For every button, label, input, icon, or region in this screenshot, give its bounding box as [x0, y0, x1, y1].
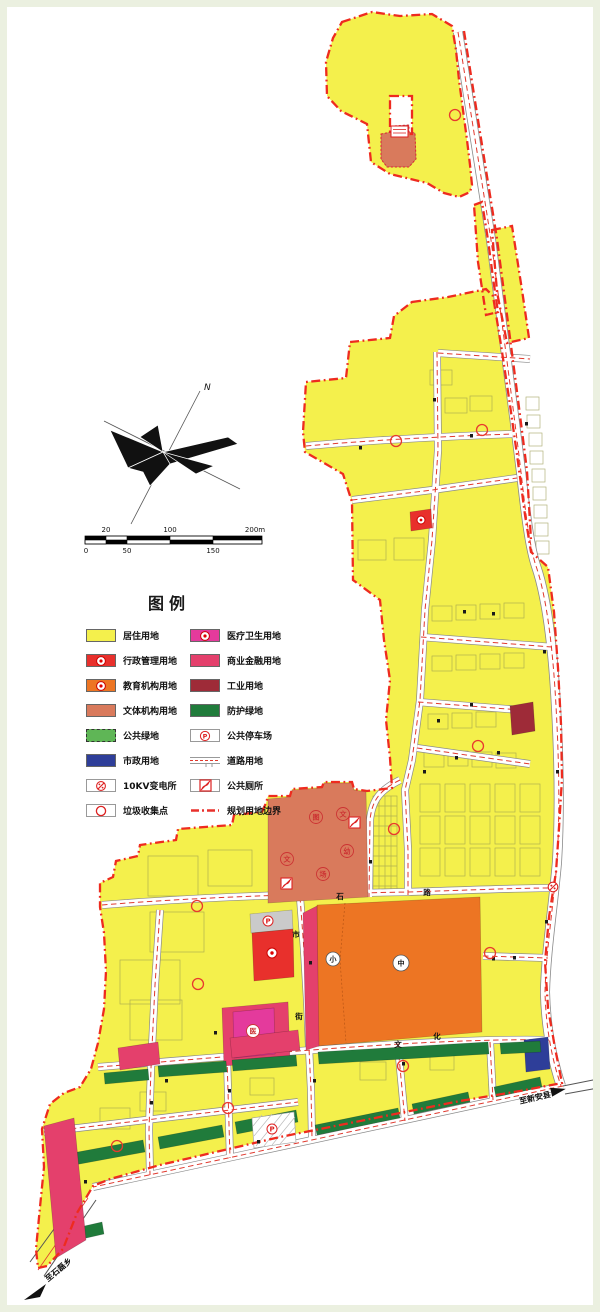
legend-label: 工业用地 [227, 679, 263, 692]
svg-text:路: 路 [423, 887, 431, 897]
svg-text:街: 街 [294, 1011, 303, 1021]
legend-item-protective-green: 防护绿地 [190, 698, 326, 723]
legend-swatch-protective-green [190, 704, 220, 717]
middle-school-label: 中 [393, 955, 409, 971]
legend-item-culture: 文体机构用地 [86, 698, 190, 723]
svg-text:文: 文 [394, 1039, 402, 1049]
legend-panel: 图例 居住用地 行政管理用地 教育机构用地 文体机构用地 [86, 590, 326, 823]
legend-label: 规划用地边界 [227, 804, 281, 817]
legend-swatch-toilet [190, 779, 220, 792]
legend-label: 公共绿地 [123, 729, 159, 742]
svg-text:20: 20 [102, 526, 111, 534]
legend-label: 公共厕所 [227, 779, 263, 792]
svg-text:文: 文 [340, 810, 348, 819]
legend-item-commercial: 商业金融用地 [190, 648, 326, 673]
boundary-line-icon [190, 804, 220, 817]
education-zone-school [317, 897, 482, 1046]
legend-item-toilet: 公共厕所 [190, 773, 326, 798]
legend-swatch-parking: P [190, 729, 220, 742]
scale-bar: 20 100 200m 0 50 150 [84, 526, 266, 555]
primary-school-label: 小 [326, 952, 340, 966]
legend-swatch-admin [86, 654, 116, 667]
legend-swatch-education [86, 679, 116, 692]
legend-label: 医疗卫生用地 [227, 629, 281, 642]
north-label: N [204, 383, 211, 393]
admin-icon [95, 655, 107, 667]
legend-item-road: 道路用地 [190, 748, 326, 773]
commercial-strip [303, 906, 319, 1050]
legend-swatch-medical [190, 629, 220, 642]
svg-text:P: P [203, 732, 208, 740]
legend-swatch-municipal [86, 754, 116, 767]
svg-text:小: 小 [329, 955, 337, 964]
svg-text:50: 50 [123, 547, 132, 555]
legend-label: 教育机构用地 [123, 679, 177, 692]
substation-icon [548, 882, 558, 892]
toilet-icon [199, 779, 212, 792]
legend-label: 防护绿地 [227, 704, 263, 717]
svg-text:P: P [269, 1125, 274, 1133]
legend-item-public-green: 公共绿地 [86, 723, 190, 748]
legend-swatch-boundary [190, 804, 220, 817]
culture-block-top-icon [391, 126, 408, 137]
medical-icon [199, 630, 211, 642]
svg-text:200m: 200m [245, 526, 265, 534]
legend-label: 公共停车场 [227, 729, 272, 742]
legend-item-residential: 居住用地 [86, 623, 190, 648]
svg-text:P: P [265, 917, 270, 925]
education-icon [95, 680, 107, 692]
legend-label: 10KV变电所 [123, 779, 176, 792]
industrial-zone [510, 702, 535, 735]
svg-text:石: 石 [335, 892, 344, 901]
compass-rose: N [104, 383, 240, 524]
legend-item-parking: P 公共停车场 [190, 723, 326, 748]
legend-label: 文体机构用地 [123, 704, 177, 717]
parking-icon: P [199, 730, 211, 742]
svg-text:150: 150 [206, 547, 219, 555]
legend-item-medical: 医疗卫生用地 [190, 623, 326, 648]
garbage-point-icon [95, 805, 107, 817]
svg-text:幼: 幼 [344, 847, 351, 856]
svg-text:场: 场 [320, 870, 327, 879]
svg-text:中: 中 [398, 959, 405, 968]
legend-item-municipal: 市政用地 [86, 748, 190, 773]
legend-item-industrial: 工业用地 [190, 673, 326, 698]
legend-item-garbage: 垃圾收集点 [86, 798, 190, 823]
legend-item-admin: 行政管理用地 [86, 648, 190, 673]
svg-text:100: 100 [163, 526, 176, 534]
southwest-arrow-icon [24, 1284, 46, 1300]
legend-label: 居住用地 [123, 629, 159, 642]
svg-text:化: 化 [433, 1031, 441, 1041]
legend-swatch-public-green [86, 729, 116, 742]
legend-label: 垃圾收集点 [123, 804, 168, 817]
legend-item-boundary: 规划用地边界 [190, 798, 326, 823]
legend-label: 行政管理用地 [123, 654, 177, 667]
hospital-label: 医 [247, 1025, 260, 1038]
svg-text:文: 文 [284, 855, 292, 864]
legend-label: 商业金融用地 [227, 654, 281, 667]
legend-swatch-industrial [190, 679, 220, 692]
legend-swatch-residential [86, 629, 116, 642]
svg-text:市: 市 [292, 929, 300, 939]
substation-icon [94, 780, 108, 792]
legend-title: 图例 [148, 590, 326, 614]
road-icon [190, 754, 220, 767]
legend-swatch-commercial [190, 654, 220, 667]
svg-text:医: 医 [250, 1028, 257, 1036]
planning-map-page: P P 中 小 医 图 [0, 0, 600, 1312]
legend-label: 道路用地 [227, 754, 263, 767]
legend-item-substation: 10KV变电所 [86, 773, 190, 798]
legend-swatch-culture [86, 704, 116, 717]
legend-swatch-garbage [86, 804, 116, 817]
legend-item-education: 教育机构用地 [86, 673, 190, 698]
legend-swatch-road [190, 754, 220, 767]
legend-label: 市政用地 [123, 754, 159, 767]
legend-swatch-substation [86, 779, 116, 792]
svg-text:0: 0 [84, 547, 88, 555]
